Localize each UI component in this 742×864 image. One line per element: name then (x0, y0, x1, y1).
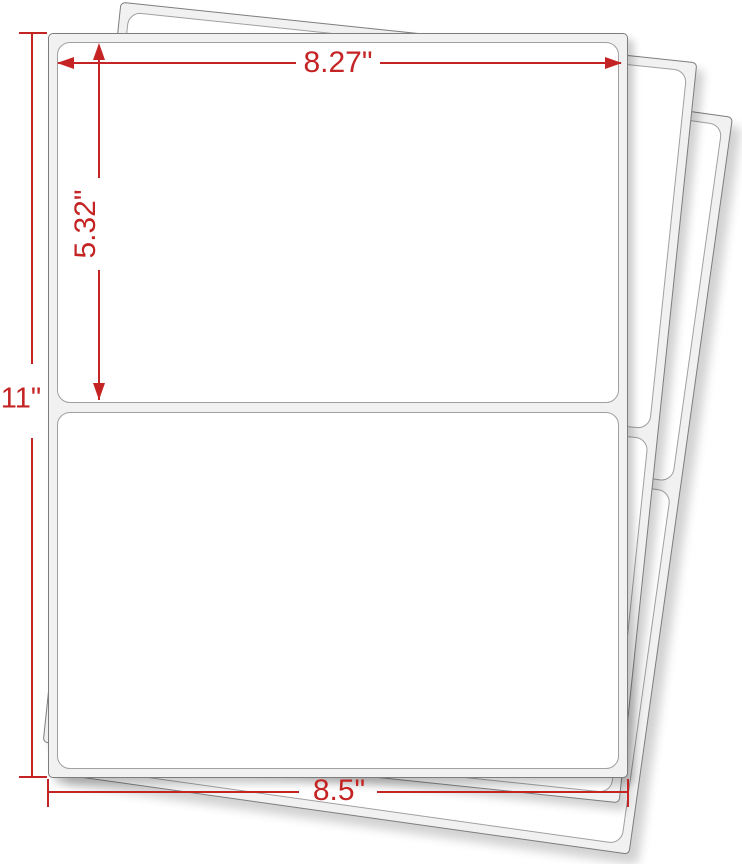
front-sheet-bottom-label (57, 412, 619, 769)
height-dim-line-top (98, 46, 100, 178)
front-sheet-top-label (57, 42, 619, 403)
front-sheet (48, 33, 628, 778)
sheet-height-line-top (31, 34, 33, 364)
sheet-width-tick-right (627, 779, 629, 807)
label-sheet-diagram: 8.27" 5.32" 11" 8.5" (0, 0, 742, 864)
sheet-width-line-left (48, 791, 299, 793)
height-dim-line-bottom (98, 270, 100, 400)
width-dim-line-left (58, 62, 296, 64)
sheet-width-tick-left (47, 779, 49, 807)
sheet-width-line-right (377, 791, 628, 793)
arrowhead-right-icon (605, 57, 622, 69)
sheet-height-tick-top (19, 32, 47, 34)
sheet-width-value: 8.5" (313, 776, 365, 806)
width-dim-line-right (380, 62, 621, 64)
label-height-value: 5.32" (71, 189, 101, 258)
arrowhead-down-icon (93, 383, 105, 400)
sheet-height-value: 11" (1, 385, 41, 414)
sheet-height-line-bottom (31, 438, 33, 776)
sheet-height-tick-bottom (19, 776, 47, 778)
label-width-value: 8.27" (303, 48, 372, 78)
